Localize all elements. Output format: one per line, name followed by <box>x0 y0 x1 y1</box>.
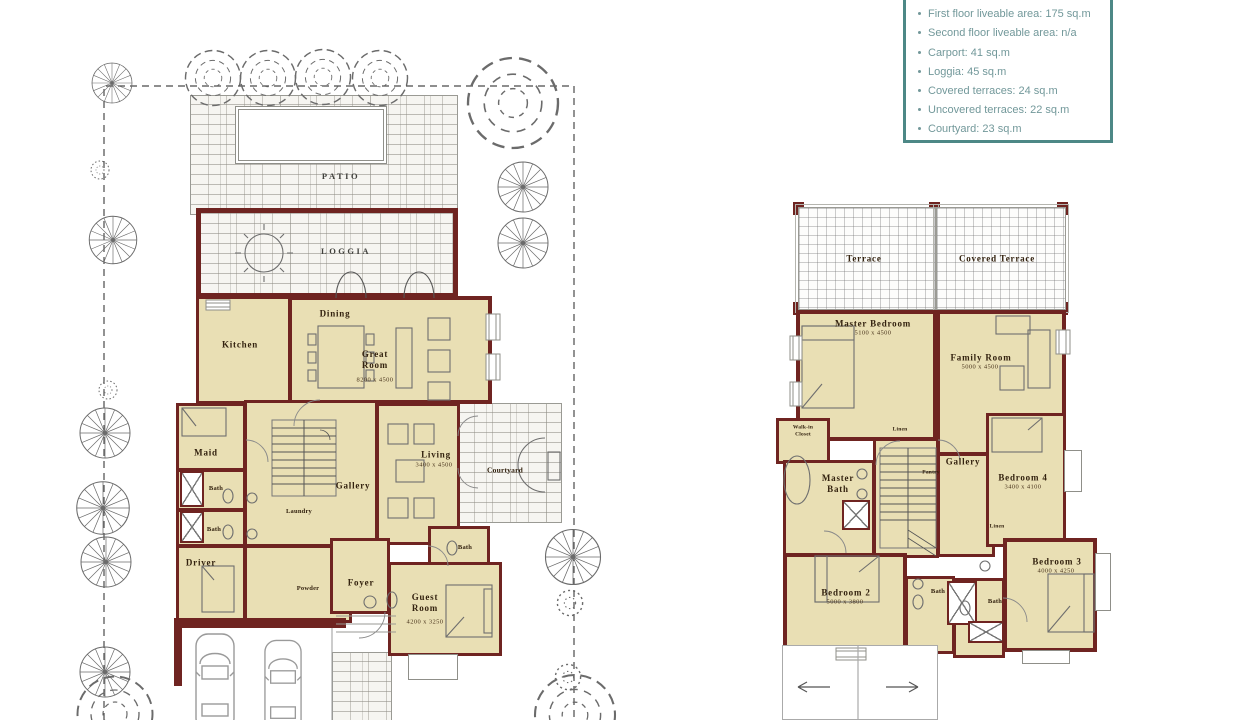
carport-back-wall <box>174 618 346 628</box>
closet-bath-b <box>180 511 204 543</box>
label-courtyard: Courtyard <box>487 466 523 475</box>
area-summary-list: First floor liveable area: 175 sq.m Seco… <box>918 5 1102 139</box>
room-bedroom3 <box>1003 538 1097 652</box>
dims-bedroom4: 3400 x 4100 <box>1005 484 1042 491</box>
dims-living: 3400 x 4500 <box>416 462 453 469</box>
closet-hall-first <box>968 621 1004 643</box>
label-bath-b: Bath <box>207 526 221 534</box>
label-linen-a: Linen <box>893 427 908 434</box>
label-foyer: Foyer <box>348 578 375 589</box>
label-walkin: Walk-in Closet <box>789 424 817 437</box>
room-foyer <box>330 538 390 614</box>
dims-family-room: 5000 x 4500 <box>962 364 999 371</box>
dims-bedroom2: 5000 x 3800 <box>827 599 864 606</box>
label-kitchen: Kitchen <box>222 340 258 351</box>
closet-master <box>842 500 870 530</box>
area-item: Carport: 41 sq.m <box>918 44 1102 63</box>
carport-roof <box>782 645 938 720</box>
label-family-room: Family Room <box>950 353 1011 364</box>
entry-walk <box>332 652 392 720</box>
label-driver: Driver <box>186 558 216 569</box>
area-item: Covered terraces: 24 sq.m <box>918 82 1102 101</box>
label-bedroom3: Bedroom 3 <box>1032 557 1081 568</box>
clipped-text-line <box>918 0 1102 5</box>
floor-plan-canvas: PATIO LOGGIA Kitchen Dining Great Room 8… <box>0 0 1240 720</box>
label-covered-terrace: Covered Terrace <box>959 254 1035 265</box>
closet-bath-a <box>180 471 204 507</box>
label-great-room: Great Room <box>352 349 398 371</box>
label-powder: Powder <box>297 585 320 593</box>
area-item: Courtyard: 23 sq.m <box>918 120 1102 139</box>
label-patio: PATIO <box>322 171 360 181</box>
label-living: Living <box>421 450 451 461</box>
area-item: Loggia: 45 sq.m <box>918 63 1102 82</box>
label-loggia: LOGGIA <box>321 246 371 256</box>
label-master-bath: Master Bath <box>817 473 859 495</box>
label-maid: Maid <box>194 448 218 459</box>
label-bedroom2: Bedroom 2 <box>821 588 870 599</box>
label-bath-a: Bath <box>209 485 223 493</box>
pool <box>238 109 384 161</box>
label-bath-a2: Bath <box>931 588 945 596</box>
label-pantry: Pantry <box>922 470 939 477</box>
window-bump <box>1022 650 1070 664</box>
label-laundry: Laundry <box>286 508 312 516</box>
bay-window-bed4 <box>1064 450 1082 492</box>
hall-stairs-gallery <box>244 400 378 547</box>
area-summary-box: First floor liveable area: 175 sq.m Seco… <box>903 0 1113 143</box>
dims-bedroom3: 4000 x 4250 <box>1038 568 1075 575</box>
label-guest-room: Guest Room <box>402 592 448 614</box>
label-gallery-ground: Gallery <box>336 481 371 492</box>
area-item: Second floor liveable area: n/a <box>918 24 1102 43</box>
area-item: Uncovered terraces: 22 sq.m <box>918 101 1102 120</box>
room-living <box>376 403 460 545</box>
hall-stairs-first <box>873 438 939 558</box>
label-linen-b: Linen <box>990 524 1005 531</box>
label-bath-b2: Bath <box>988 598 1002 606</box>
courtyard-area <box>456 403 562 523</box>
label-master-bedroom: Master Bedroom <box>835 319 911 330</box>
closet-bath-a2 <box>947 581 977 625</box>
label-bedroom4: Bedroom 4 <box>998 473 1047 484</box>
label-dining: Dining <box>320 309 351 320</box>
dims-guest-room: 4200 x 3250 <box>407 619 444 626</box>
label-terrace: Terrace <box>846 254 881 265</box>
label-bath-c: Bath <box>458 544 472 552</box>
room-maid <box>176 403 246 471</box>
carport-side-wall <box>174 628 182 686</box>
area-item: First floor liveable area: 175 sq.m <box>918 5 1102 24</box>
dims-great-room: 8200 x 4500 <box>357 377 394 384</box>
cars <box>196 628 332 720</box>
bay-window-bed3 <box>1095 553 1111 611</box>
dims-master-bedroom: 5100 x 4500 <box>855 330 892 337</box>
guest-stoop <box>408 654 458 680</box>
label-gallery-first: Gallery <box>946 457 981 468</box>
